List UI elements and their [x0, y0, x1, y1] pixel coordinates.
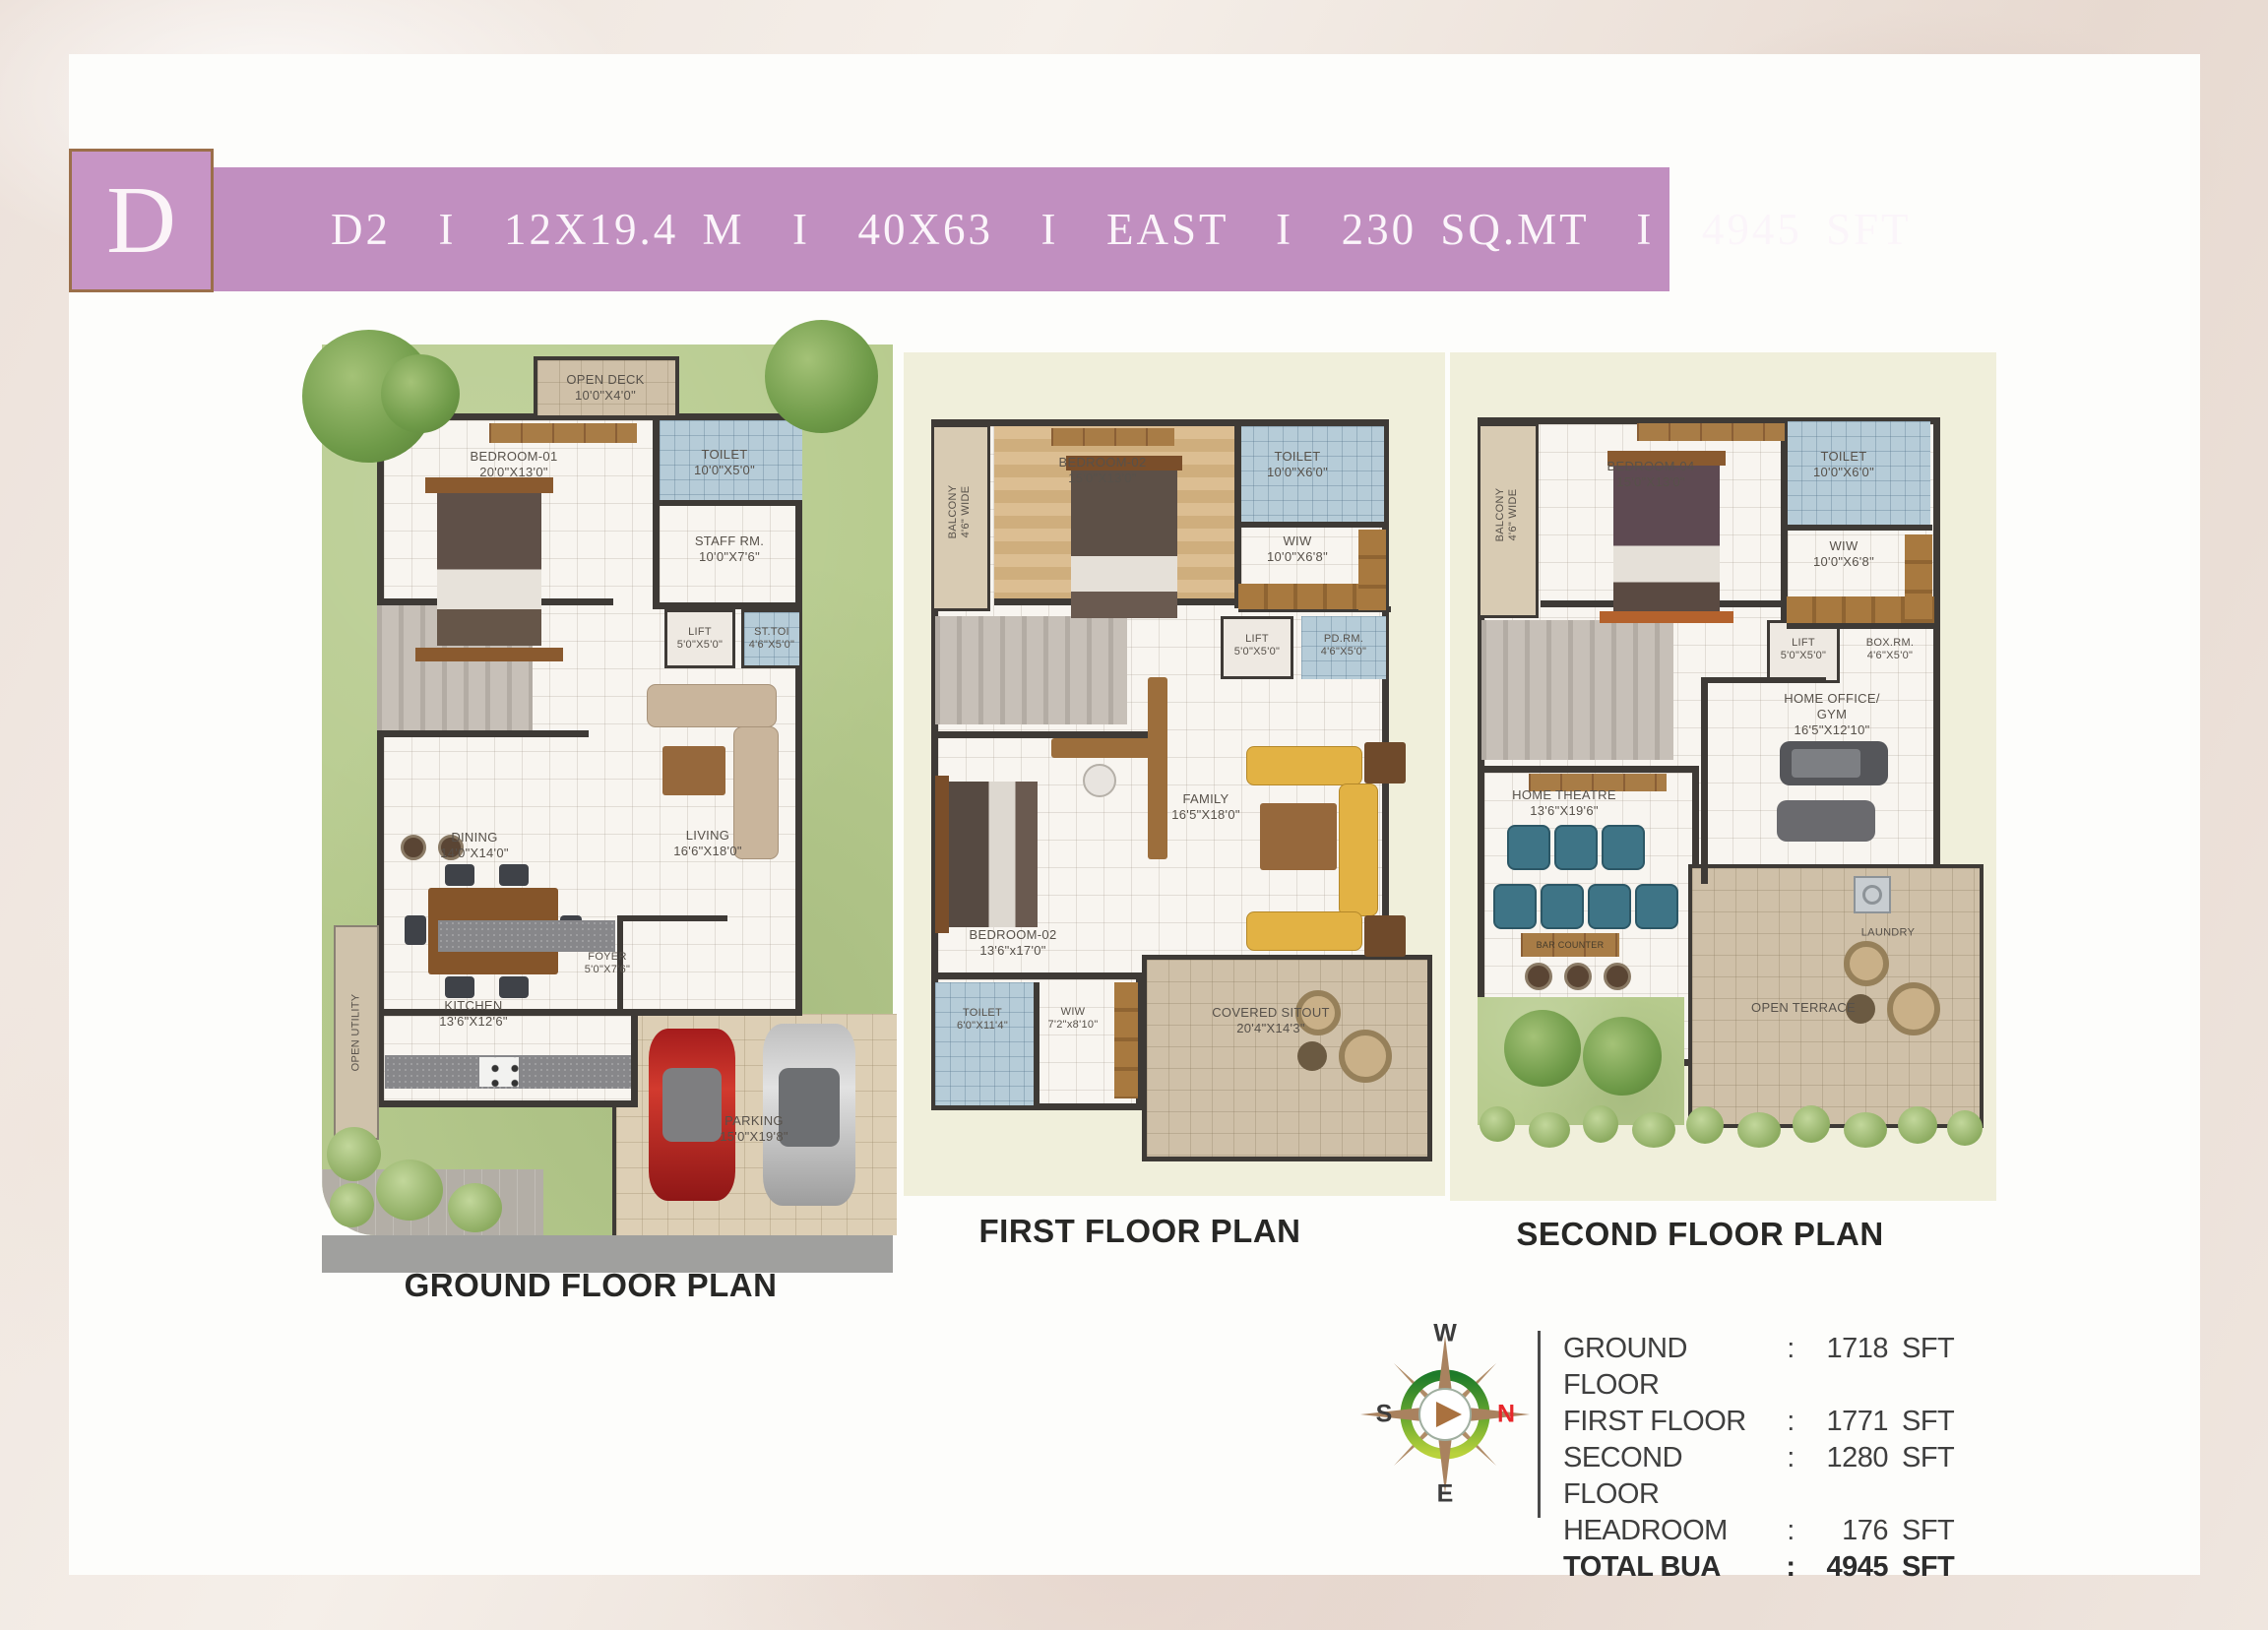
- rattan-chair: [1339, 1030, 1392, 1083]
- room-label-home-theatre: HOME THEATRE13'6"X19'6": [1512, 787, 1616, 819]
- bed: [425, 477, 553, 659]
- second-floor-plan: BALCONY4'6" WIDE BEDROOM-0415'0"X13'0" T…: [1450, 352, 1996, 1201]
- stove: [479, 1057, 519, 1087]
- first-floor-title: FIRST FLOOR PLAN: [979, 1213, 1301, 1250]
- second-floor-title: SECOND FLOOR PLAN: [1516, 1216, 1883, 1253]
- table-row: GROUND FLOOR: 1718SFT: [1563, 1331, 1961, 1404]
- wiw-wardrobe: [1905, 534, 1932, 623]
- room-label-st-toilet: ST.TOI4'6"X5'0": [749, 626, 795, 652]
- theatre-seat: [1635, 884, 1678, 929]
- wardrobe: [1051, 428, 1174, 446]
- room-label-wiw: WIW10'0"X6'8": [1813, 538, 1874, 570]
- bush: [1529, 1112, 1570, 1148]
- page-card: D2 I 12X19.4 M I 40X63 I EAST I 230 SQ.M…: [69, 54, 2200, 1575]
- table-divider: [1538, 1331, 1541, 1518]
- tree: [1504, 1010, 1581, 1087]
- side-table: [1364, 742, 1406, 784]
- dining-chair: [445, 976, 474, 998]
- wall: [377, 730, 589, 737]
- wall: [1787, 623, 1939, 629]
- coffee-table: [1260, 803, 1337, 870]
- theatre-seat: [1493, 884, 1537, 929]
- room-label-open-deck: OPEN DECK10'0"X4'0": [566, 372, 644, 404]
- room-label-lift: LIFT5'0"X5'0": [1234, 633, 1281, 658]
- table-row: HEADROOM: 176SFT: [1563, 1513, 1961, 1549]
- room-label-laundry: LAUNDRY: [1861, 927, 1915, 940]
- sofa: [647, 684, 777, 727]
- stool: [1604, 963, 1631, 990]
- bush: [1632, 1112, 1675, 1148]
- room-label-lift: LIFT5'0"X5'0": [1781, 637, 1827, 662]
- room-label-bedroom-02: BEDROOM-0215'0"X13'0": [1059, 455, 1147, 486]
- room-label-bedroom-01: BEDROOM-0120'0"X13'0": [471, 449, 558, 480]
- tree: [765, 320, 878, 433]
- rattan-chair: [1844, 941, 1889, 986]
- dining-chair: [499, 864, 529, 886]
- room-label-box-room: BOX.RM.4'6"X5'0": [1866, 637, 1915, 662]
- bush: [448, 1183, 502, 1232]
- wall: [1781, 421, 1788, 623]
- wall: [1708, 677, 1826, 683]
- compass-north-label: N: [1497, 1401, 1515, 1429]
- room-label-toilet: TOILET10'0"X6'0": [1267, 449, 1328, 480]
- room-label-foyer: FOYER5'0"X7'6": [585, 951, 631, 976]
- rattan-chair: [1887, 982, 1940, 1035]
- side-table: [1364, 915, 1406, 957]
- wall: [653, 602, 802, 609]
- wardrobe: [1637, 423, 1785, 441]
- area-summary-table: GROUND FLOOR: 1718SFT FIRST FLOOR: 1771S…: [1563, 1331, 1961, 1586]
- bush: [376, 1160, 443, 1221]
- wall: [1787, 525, 1932, 531]
- spec-banner: D2 I 12X19.4 M I 40X63 I EAST I 230 SQ.M…: [213, 167, 1669, 291]
- bush: [1737, 1112, 1781, 1148]
- yellow-sofa: [1339, 784, 1378, 916]
- compass-south-label: S: [1376, 1401, 1393, 1429]
- stool: [401, 835, 426, 860]
- room-label-open-utility: OPEN UTILITY: [350, 994, 363, 1072]
- table-row: FIRST FLOOR: 1771SFT: [1563, 1404, 1961, 1440]
- wall: [1034, 982, 1039, 1105]
- exercise-bike: [1777, 800, 1875, 842]
- room-label-bedroom-02b: BEDROOM-0213'6"x17'0": [970, 927, 1057, 959]
- stool: [1525, 963, 1552, 990]
- room-label-kitchen: KITCHEN13'6"X12'6": [439, 998, 508, 1030]
- room-label-wiw: WIW10'0"X6'8": [1267, 533, 1328, 565]
- bush: [327, 1127, 381, 1181]
- room-label-living: LIVING16'6"X18'0": [673, 828, 742, 859]
- theatre-seat: [1541, 884, 1584, 929]
- bush: [1686, 1106, 1724, 1144]
- room-label-balcony: BALCONY4'6" WIDE: [947, 485, 973, 539]
- room-label-toilet: TOILET10'0"X5'0": [694, 447, 755, 478]
- wall: [1238, 522, 1386, 528]
- theatre-seat: [1588, 884, 1631, 929]
- ground-floor-plan: OPEN DECK10'0"X4'0" BEDROOM-0120'0"X13'0…: [322, 345, 893, 1289]
- room-label-dining: DINING14'0"X14'0": [440, 830, 509, 861]
- room-label-lift: LIFT5'0"X5'0": [677, 626, 724, 652]
- tree: [381, 354, 460, 433]
- dining-chair: [499, 976, 529, 998]
- wardrobe: [489, 423, 637, 443]
- first-toilet-bottom-area: [935, 982, 1034, 1105]
- open-terrace-area: [1688, 864, 1984, 1128]
- block-d-badge: D: [69, 149, 214, 292]
- coffee-table: [662, 746, 725, 795]
- bush: [1583, 1105, 1618, 1143]
- room-label-home-office: HOME OFFICE/GYM16'5"X12'10": [1784, 691, 1880, 738]
- bush: [1480, 1106, 1515, 1142]
- bush: [1898, 1106, 1937, 1144]
- wall: [653, 420, 660, 605]
- wall: [653, 500, 802, 506]
- dining-chair: [445, 864, 474, 886]
- dining-chair: [405, 915, 426, 945]
- yellow-sofa: [1246, 746, 1362, 785]
- wall: [1234, 426, 1241, 608]
- first-floor-plan: BALCONY4'6" WIDE BEDROOM-0215'0"X13'0" T…: [904, 352, 1445, 1196]
- block-d-letter: D: [106, 172, 176, 269]
- spec-banner-text: D2 I 12X19.4 M I 40X63 I EAST I 230 SQ.M…: [331, 204, 1912, 255]
- bush: [1947, 1110, 1983, 1146]
- second-stairs: [1481, 620, 1673, 760]
- stool: [1564, 963, 1592, 990]
- tv-unit: [1148, 677, 1167, 859]
- ground-floor-title: GROUND FLOOR PLAN: [405, 1267, 778, 1304]
- floorplan-brochure-page: { "badge": {"letter": "D"}, "banner": {"…: [0, 0, 2268, 1630]
- tree: [1583, 1017, 1662, 1096]
- compass-east-label: E: [1437, 1480, 1454, 1509]
- room-label-family: FAMILY16'5"X18'0": [1171, 791, 1240, 823]
- theatre-seat: [1507, 825, 1550, 870]
- wall: [1701, 677, 1708, 884]
- wiw-wardrobe: [1358, 530, 1386, 610]
- wall: [935, 731, 1166, 738]
- room-label-parking: PARKING15'0"X19'8": [720, 1113, 788, 1145]
- theatre-seat: [1554, 825, 1598, 870]
- first-stairs: [935, 616, 1127, 724]
- wiw-wardrobe: [1114, 982, 1138, 1098]
- room-label-wiw-bottom: WIW7'2"x8'10": [1047, 1006, 1098, 1032]
- compass-west-label: W: [1433, 1320, 1457, 1348]
- patio-table: [1297, 1041, 1327, 1071]
- room-label-toilet: TOILET10'0"X6'0": [1813, 449, 1874, 480]
- table-row-total: TOTAL BUA: 4945SFT: [1563, 1549, 1961, 1586]
- bush: [1844, 1112, 1887, 1148]
- treadmill: [1780, 741, 1888, 785]
- bush: [330, 1183, 374, 1227]
- room-label-bar-counter: BAR COUNTER: [1537, 940, 1605, 950]
- yellow-sofa: [1246, 911, 1362, 951]
- bush: [1793, 1105, 1830, 1143]
- washing-machine: [1854, 876, 1891, 913]
- room-label-covered-sitout: COVERED SITOUT20'4"X14'3": [1212, 1005, 1330, 1036]
- room-label-open-terrace: OPEN TERRACE: [1751, 1000, 1856, 1016]
- desk-chair: [1083, 764, 1116, 797]
- room-label-balcony: BALCONY4'6" WIDE: [1494, 488, 1520, 542]
- room-label-staff-room: STAFF RM.10'0"X7'6": [695, 533, 764, 565]
- wall: [617, 915, 727, 921]
- room-label-powder-room: PD.RM.4'6"X5'0": [1321, 633, 1367, 658]
- theatre-seat: [1602, 825, 1645, 870]
- room-label-toilet-bottom: TOILET6'0"X11'4": [957, 1007, 1008, 1033]
- kitchen-counter: [438, 920, 615, 952]
- bed: [935, 776, 1041, 933]
- table-row: SECOND FLOOR: 1280SFT: [1563, 1440, 1961, 1513]
- room-label-bedroom-04: BEDROOM-0415'0"X13'0": [1607, 459, 1695, 490]
